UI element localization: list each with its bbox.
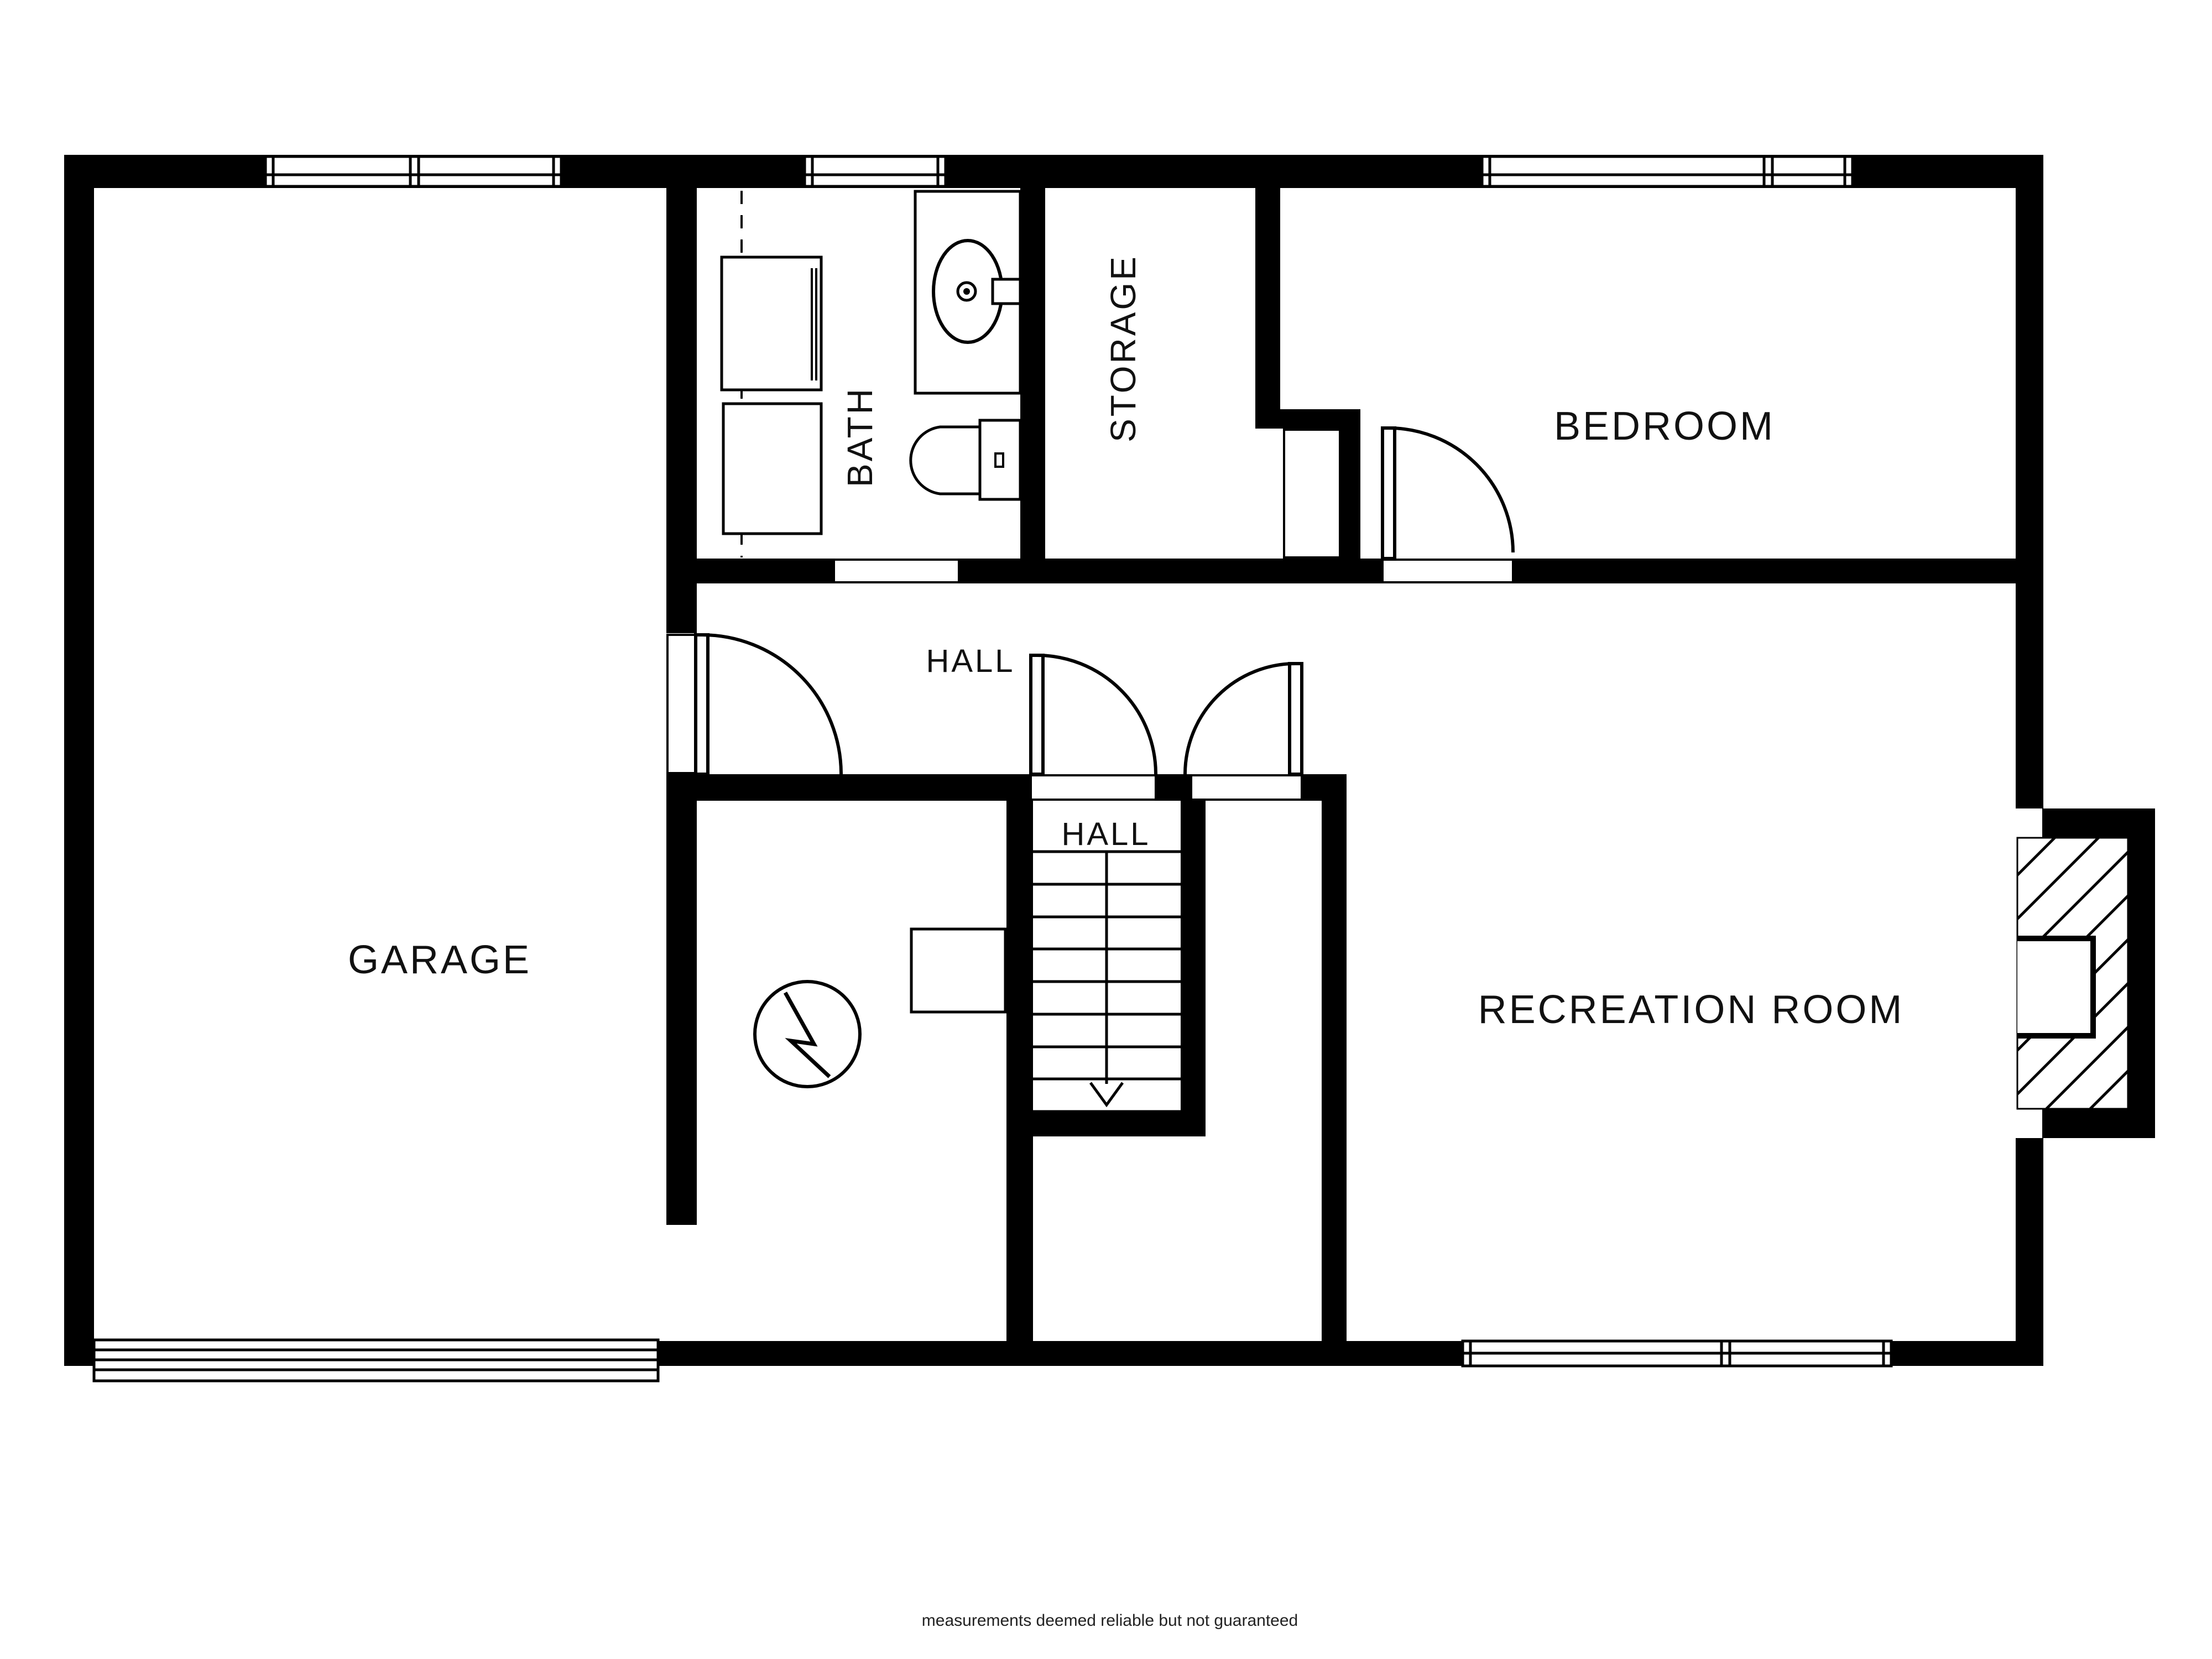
wall-exterior-left (64, 155, 94, 1366)
utility-closet (911, 929, 1005, 1012)
fireplace-right-wall (2128, 808, 2155, 1138)
bath-opening-sill (834, 560, 959, 582)
washer-icon (722, 257, 821, 390)
fireplace-icon (2017, 808, 2155, 1138)
bedroom-label: BEDROOM (1554, 404, 1775, 448)
hall-lower-label: HALL (1061, 816, 1150, 852)
garage-door (94, 1340, 658, 1381)
fireplace-firebox (2017, 936, 2096, 1039)
garage-label: GARAGE (348, 938, 531, 982)
bath-label: BATH (840, 387, 880, 487)
dryer-icon (723, 404, 821, 534)
bedroom-door-sill (1383, 560, 1513, 582)
water-heater-icon (755, 982, 860, 1087)
bath-window (805, 156, 946, 186)
wall-exterior-right-upper (2016, 155, 2043, 808)
wall-storage-right (1255, 188, 1280, 409)
wall-storage-pillar (1341, 429, 1360, 559)
wall-stairs-bottom (1006, 1112, 1206, 1136)
hall-door-b-sill (1191, 775, 1302, 800)
wall-recreation-left (1322, 801, 1347, 1341)
wall-stairs-left (1006, 801, 1033, 1341)
disclaimer-text: measurements deemed reliable but not gua… (922, 1611, 1298, 1630)
wall-stairs-right (1181, 801, 1206, 1112)
storage-opening-sill (1284, 430, 1340, 557)
bathroom-sink-icon (915, 191, 1020, 393)
wall-bath-right (1020, 188, 1045, 559)
wall-garage-right-lower (666, 801, 697, 1225)
garage-window (265, 156, 561, 186)
hall-door-a-sill (1031, 775, 1156, 800)
bedroom-window (1482, 156, 1853, 186)
floor-plan: GARAGE BATH STORAGE BEDROOM HALL HALL RE… (0, 0, 2212, 1659)
wall-storage-jog (1255, 409, 1360, 429)
recreation-room-label: RECREATION ROOM (1478, 988, 1905, 1032)
toilet-icon (911, 420, 1020, 499)
garage-hall-door-sill (667, 635, 696, 773)
storage-label: STORAGE (1103, 254, 1143, 442)
wall-exterior-right-lower (2016, 1138, 2043, 1366)
recreation-window (1463, 1341, 1891, 1366)
hall-upper-label: HALL (926, 643, 1015, 679)
